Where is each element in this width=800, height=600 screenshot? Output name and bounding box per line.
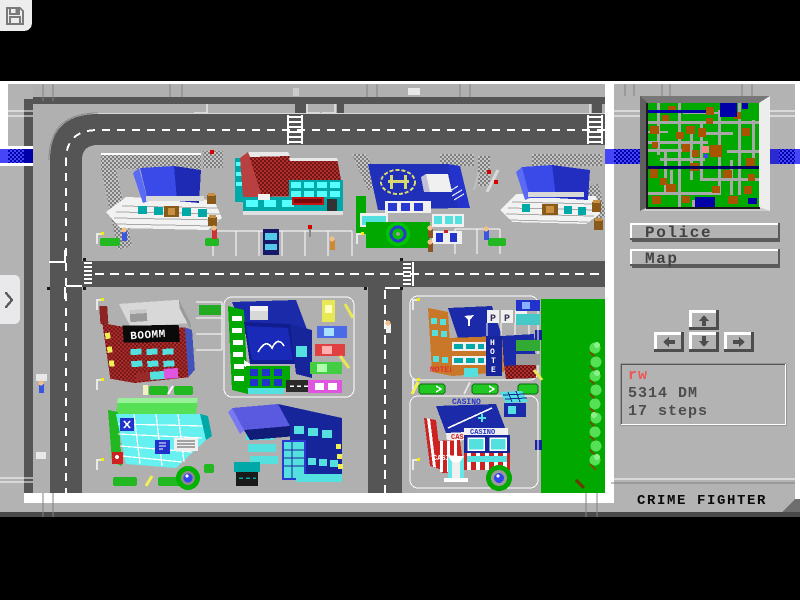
svg-text:MOTEL: MOTEL bbox=[430, 366, 454, 375]
svg-text:H: H bbox=[490, 339, 495, 348]
svg-text:P: P bbox=[504, 314, 510, 325]
svg-text:17 steps: 17 steps bbox=[628, 403, 708, 420]
svg-text:P: P bbox=[490, 314, 496, 325]
svg-text:BOOMM: BOOMM bbox=[130, 329, 166, 343]
svg-text:Police: Police bbox=[645, 224, 712, 242]
svg-text:CRIME FIGHTER: CRIME FIGHTER bbox=[637, 493, 767, 509]
svg-text:E: E bbox=[491, 366, 496, 375]
svg-text:T: T bbox=[491, 357, 496, 366]
svg-text:O: O bbox=[490, 348, 495, 357]
svg-text:5314 DM: 5314 DM bbox=[628, 385, 698, 402]
svg-text:rw: rw bbox=[628, 367, 648, 384]
svg-text:Map: Map bbox=[645, 250, 679, 268]
